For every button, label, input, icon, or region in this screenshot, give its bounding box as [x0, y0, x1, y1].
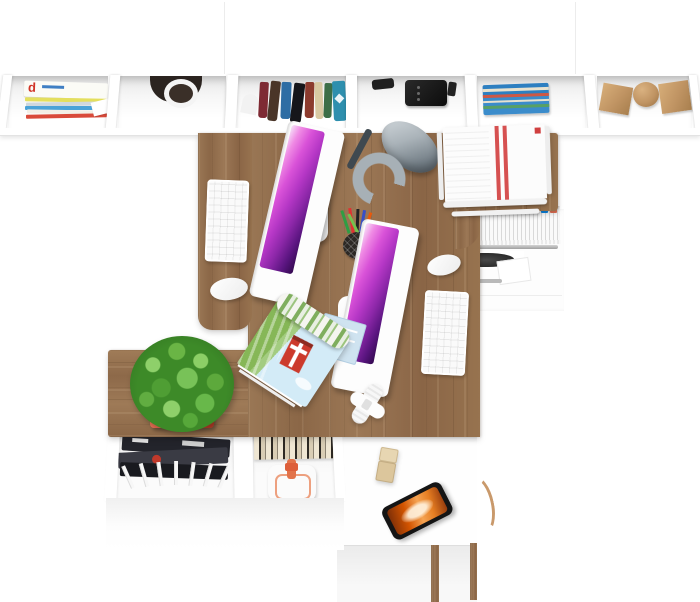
magazine-pile: [482, 83, 549, 115]
cabinet-wood-strip: [470, 543, 477, 600]
shelf-top-panel: [0, 0, 700, 76]
hanging-cup-ring: [164, 79, 198, 108]
magazine-text-dash: [132, 438, 148, 443]
bag-clip: [285, 463, 298, 471]
magazine-pile-spine: [483, 99, 549, 103]
poster-cloud: [293, 375, 314, 393]
keyboard-2: [421, 290, 469, 376]
magazine-pile-spine: [483, 87, 549, 92]
cabinet-front: [337, 545, 477, 602]
wall-shelf: d: [0, 0, 700, 141]
speaker-button: [417, 98, 420, 101]
magazine-letter: d: [28, 80, 36, 95]
wood-cube: [599, 83, 633, 116]
shelf-panel-seam: [575, 2, 576, 74]
paper: [121, 465, 134, 489]
shelf-panel-seam: [224, 2, 225, 74]
striped-books: [254, 434, 336, 459]
paper-text-lines: [445, 128, 491, 199]
tray-front-leg: [451, 209, 539, 217]
book-spine: [323, 83, 332, 118]
tray-papers: [443, 124, 548, 202]
book-spine: [314, 82, 323, 119]
speaker-button: [417, 86, 420, 89]
magazine-text-dash: [182, 440, 204, 447]
book-spine: [332, 81, 347, 122]
speaker: [405, 80, 447, 106]
paper: [203, 463, 213, 487]
orange-strap-bag: [268, 465, 316, 501]
wood-cube: [658, 80, 692, 114]
magazine-pile-spine: [483, 93, 549, 98]
paper: [188, 462, 195, 486]
shelf-divider: [346, 75, 357, 129]
wood-sphere: [633, 82, 659, 107]
paper-red-stripe: [502, 126, 509, 200]
paper: [217, 465, 230, 489]
book-logo: [334, 94, 344, 104]
paper: [156, 462, 163, 486]
pedestal-seam: [480, 295, 562, 296]
magazine-pile-spine: [483, 104, 549, 109]
document-tray: [434, 118, 559, 220]
magazine-title-bar: [42, 85, 64, 89]
book-spine: [305, 82, 315, 118]
cabinet-wood-strip: [431, 545, 439, 602]
paper: [139, 463, 149, 487]
plant-foliage: [130, 336, 234, 432]
sideboard-wall: [332, 435, 345, 501]
fanned-papers: [120, 463, 238, 493]
sideboard-shelf-unit: [106, 435, 344, 555]
lamp-base: [352, 152, 406, 206]
usb-body: [375, 460, 396, 483]
phone-screen-highlight: [398, 495, 437, 527]
tray-wire-rail: [545, 126, 552, 194]
sideboard-divider: [233, 435, 253, 501]
paper-red-stripe: [494, 126, 501, 200]
office-top-view-render: d: [0, 0, 700, 602]
sideboard-front: [106, 498, 344, 550]
keyboard-1: [205, 179, 250, 262]
shelf-compartment-row: d: [0, 76, 700, 128]
speaker-button: [417, 92, 420, 95]
paper: [174, 461, 178, 485]
paper-red-mark: [535, 127, 541, 133]
